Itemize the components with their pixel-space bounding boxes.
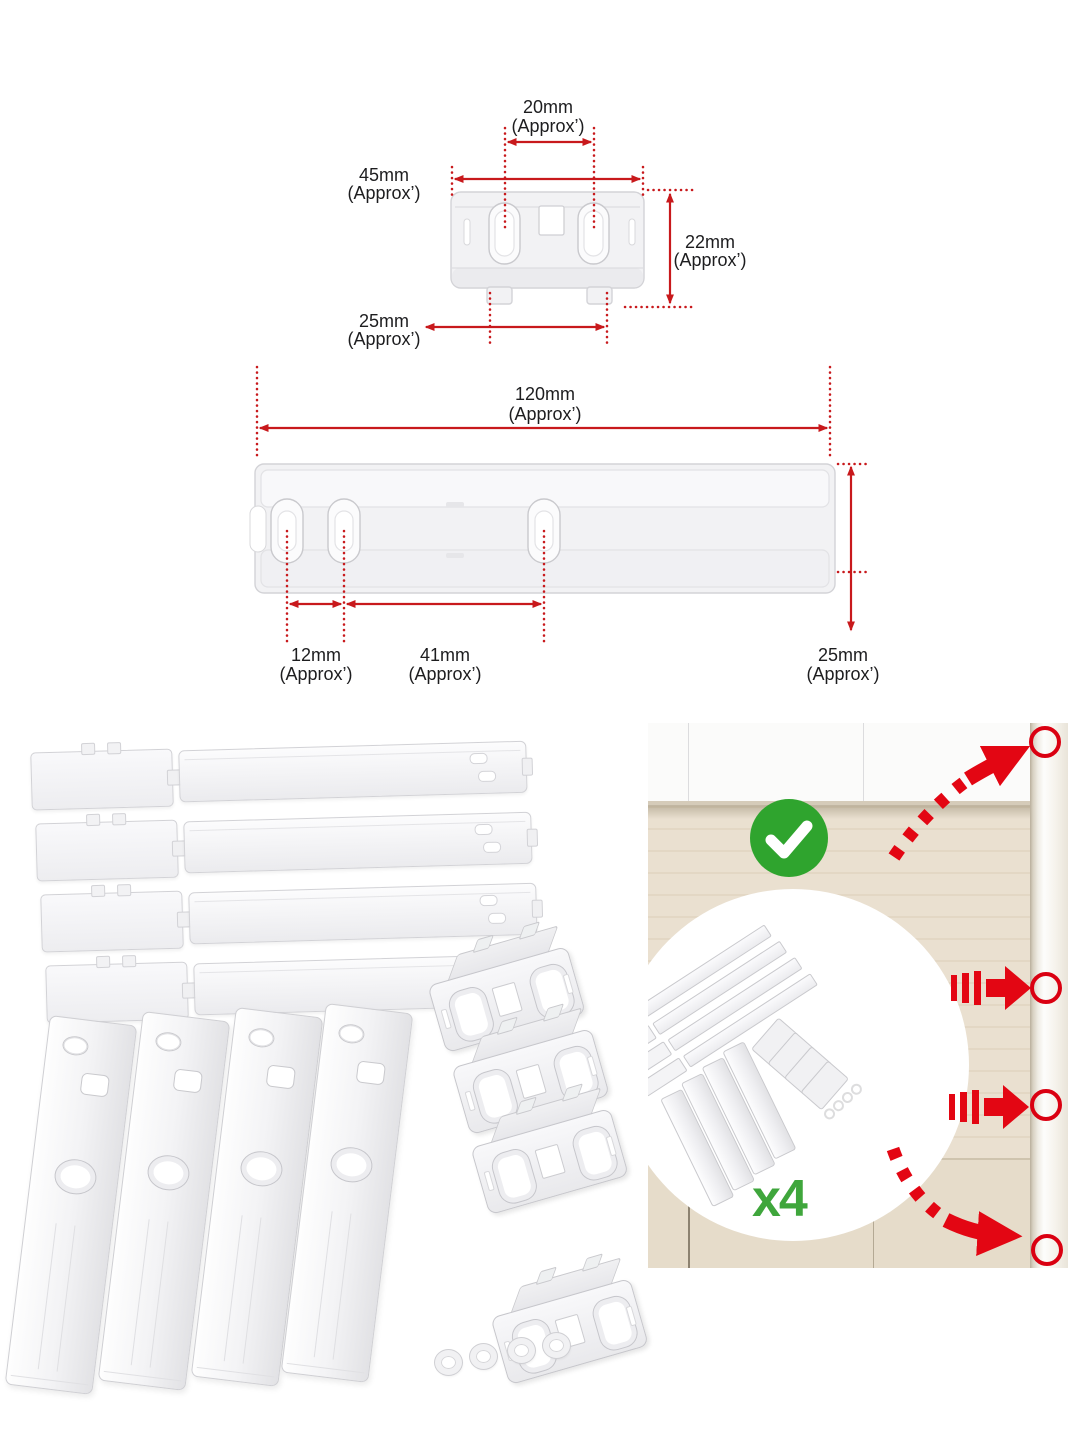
rail-dim-label-120mm: 120mm (Approx’) [508, 384, 581, 424]
bracket-dim-label-20mm: 20mm (Approx’) [511, 97, 584, 136]
svg-text:45mm: 45mm [359, 165, 409, 185]
svg-text:(Approx’): (Approx’) [508, 404, 581, 424]
bracket-dim-label-45mm: 45mm (Approx’) [347, 165, 420, 203]
red-arrows [648, 723, 1068, 1268]
rail-part-drawing [250, 464, 835, 593]
fixing-bracket [484, 1255, 650, 1386]
slide-bar [178, 741, 527, 803]
fixing-plate [30, 749, 174, 811]
slide-bar [183, 812, 532, 874]
bracket-dim-label-25mm: 25mm (Approx’) [347, 311, 420, 349]
washer [543, 1333, 570, 1358]
svg-text:(Approx’): (Approx’) [673, 250, 746, 270]
slide-bar [188, 883, 537, 945]
washer [435, 1350, 462, 1375]
svg-text:(Approx’): (Approx’) [347, 329, 420, 349]
svg-text:25mm: 25mm [818, 645, 868, 665]
svg-text:120mm: 120mm [515, 384, 575, 404]
slide-assembly [35, 808, 577, 885]
washer [470, 1344, 497, 1369]
bracket-part-drawing [451, 192, 644, 304]
fixing-plate [35, 820, 179, 882]
straight-arrow-middle [951, 966, 1031, 1010]
curved-arrow-bottom [893, 1149, 1000, 1235]
rail-dim-label-41mm: 41mm (Approx’) [408, 645, 481, 684]
kit-contents-photo [0, 710, 660, 1453]
svg-text:22mm: 22mm [685, 232, 735, 252]
straight-arrow-lower [949, 1085, 1029, 1129]
rail-dim-label-25mm: 25mm (Approx’) [806, 645, 879, 684]
fixing-plate [40, 891, 184, 953]
curved-arrow-top [894, 756, 1010, 857]
rail-dim-label-12mm: 12mm (Approx’) [279, 645, 352, 684]
svg-text:25mm: 25mm [359, 311, 409, 331]
svg-text:(Approx’): (Approx’) [408, 664, 481, 684]
svg-text:(Approx’): (Approx’) [279, 664, 352, 684]
svg-text:12mm: 12mm [291, 645, 341, 665]
washer [508, 1338, 535, 1363]
svg-text:41mm: 41mm [420, 645, 470, 665]
product-infographic: 20mm (Approx’) 45mm (Approx’) 22mm (Appr… [0, 0, 1090, 1453]
svg-text:(Approx’): (Approx’) [806, 664, 879, 684]
installation-photo: x4 [648, 723, 1068, 1268]
svg-text:20mm: 20mm [523, 97, 573, 117]
bracket-dim-label-22mm: 22mm (Approx’) [673, 232, 746, 270]
svg-text:(Approx’): (Approx’) [347, 183, 420, 203]
dimension-diagrams: 20mm (Approx’) 45mm (Approx’) 22mm (Appr… [0, 0, 1090, 705]
svg-text:(Approx’): (Approx’) [511, 116, 584, 136]
slide-assembly [30, 737, 572, 814]
